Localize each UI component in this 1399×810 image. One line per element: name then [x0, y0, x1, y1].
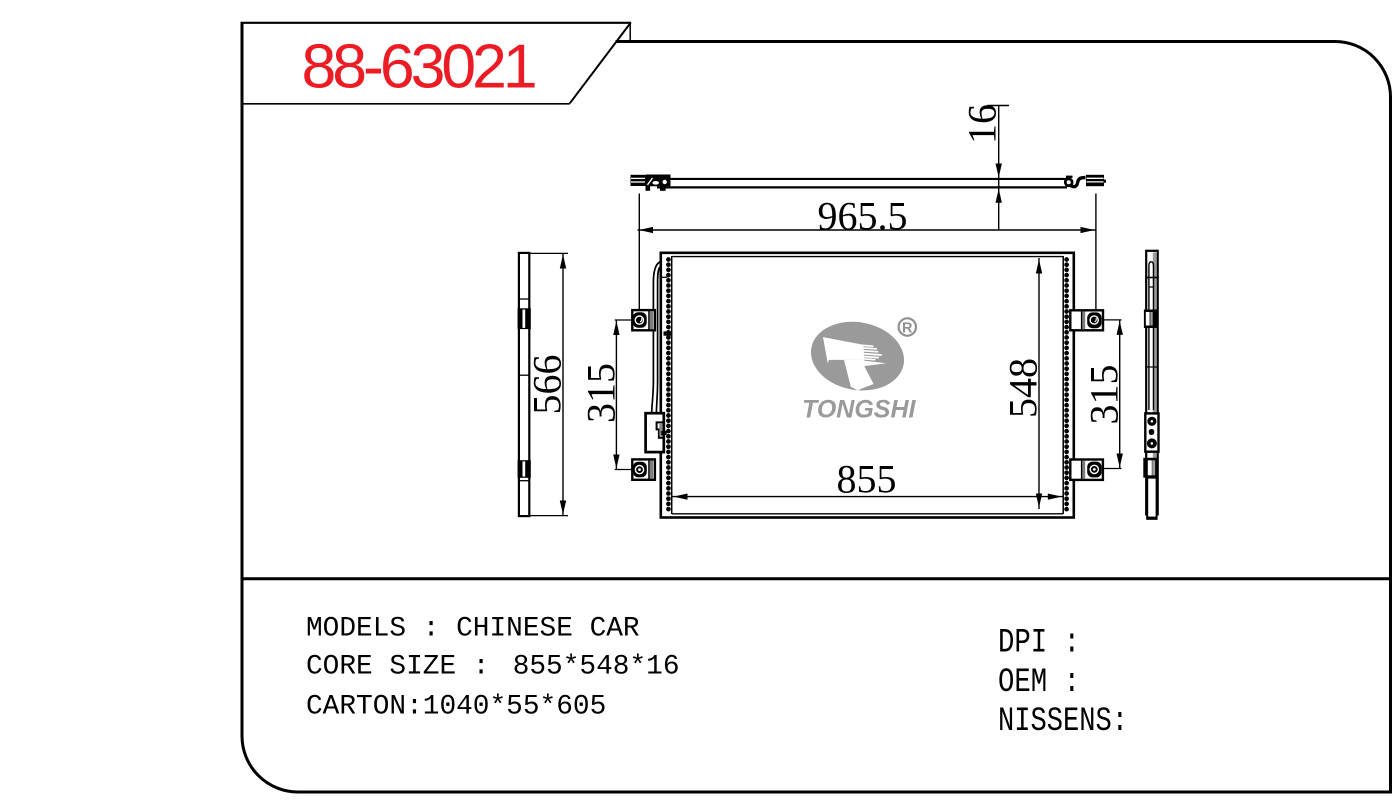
svg-text:855*548*16: 855*548*16: [513, 652, 680, 683]
svg-text:566: 566: [525, 355, 570, 415]
svg-text:CORE SIZE :: CORE SIZE :: [306, 652, 490, 683]
svg-text:DPI :: DPI :: [998, 625, 1080, 663]
svg-text:855: 855: [837, 457, 897, 502]
svg-text:R: R: [902, 320, 913, 336]
svg-text:TONGSHI: TONGSHI: [802, 396, 916, 424]
svg-text:315: 315: [579, 363, 624, 423]
svg-text:CARTON:1040*55*605: CARTON:1040*55*605: [306, 691, 606, 722]
svg-text:88-63021: 88-63021: [302, 32, 535, 102]
svg-text:16: 16: [960, 104, 1005, 144]
svg-text:548: 548: [1001, 358, 1046, 418]
svg-text:MODELS : CHINESE CAR: MODELS : CHINESE CAR: [306, 614, 640, 645]
svg-text:965.5: 965.5: [818, 194, 908, 239]
svg-text:NISSENS:: NISSENS:: [998, 703, 1128, 741]
svg-text:315: 315: [1082, 365, 1127, 425]
svg-text:OEM :: OEM :: [998, 664, 1080, 702]
